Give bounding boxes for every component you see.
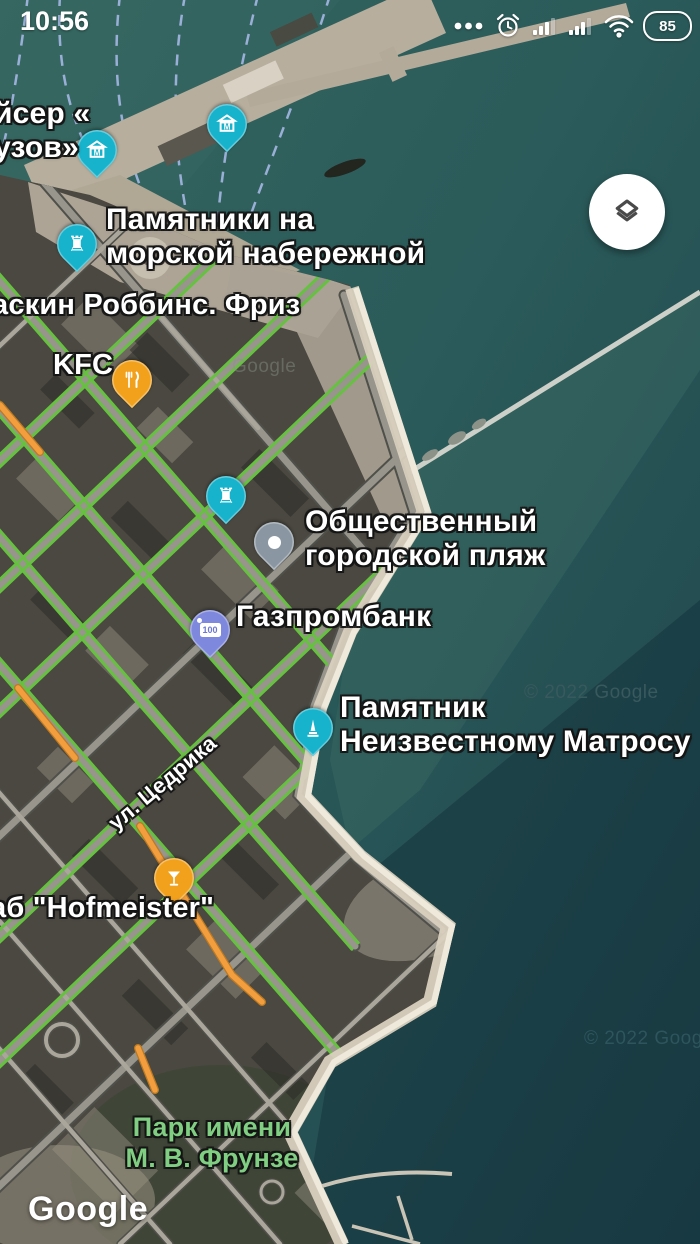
pin-gazprombank[interactable]: 100 xyxy=(182,602,239,659)
pin-museum-pier[interactable]: M xyxy=(199,96,256,153)
label-park-frunze[interactable]: Парк имени М. В. Фрунзе xyxy=(112,1112,312,1174)
label-sailor-monument[interactable]: Памятник Неизвестному Матросу xyxy=(340,691,691,759)
layers-button[interactable] xyxy=(589,174,665,250)
rook-icon: ♜ xyxy=(57,224,97,264)
restaurant-icon xyxy=(112,360,152,400)
battery-icon: 85 xyxy=(643,11,692,41)
signal-sim2-icon xyxy=(567,11,595,41)
wifi-icon xyxy=(603,11,635,41)
label-monuments-embankment[interactable]: Памятники на морской набережной xyxy=(106,203,425,271)
pin-public-beach[interactable] xyxy=(246,514,303,571)
copyright-watermark-bottom: © 2022 Google xyxy=(584,1028,700,1050)
pin-rook-city[interactable]: ♜ xyxy=(198,468,255,525)
svg-text:M: M xyxy=(94,148,101,157)
status-bar: 10:56 xyxy=(0,0,700,50)
label-baskin-robbins[interactable]: аскин Роббинс. Фриз xyxy=(0,289,300,322)
museum-icon: M xyxy=(207,104,247,144)
dot-icon xyxy=(254,522,294,562)
google-watermark-pier: Google xyxy=(232,356,296,378)
pin-monuments-embankment[interactable]: ♜ xyxy=(49,216,106,273)
obelisk-icon xyxy=(293,708,333,748)
label-gazprombank[interactable]: Газпромбанк xyxy=(236,600,431,634)
signal-sim1-icon xyxy=(531,11,559,41)
bank-icon: 100 xyxy=(190,610,230,650)
more-notifications-icon xyxy=(453,11,485,41)
label-pub-hofmeister[interactable]: аб "Hofmeister" xyxy=(0,892,214,925)
label-kfc[interactable]: KFC xyxy=(53,349,113,382)
svg-text:M: M xyxy=(224,122,231,131)
pin-sailor-monument[interactable] xyxy=(285,700,342,757)
phone-screen: Google © 2022 Google © 2022 Google Googl… xyxy=(0,0,700,1244)
label-cruiser[interactable]: йсер « узов» xyxy=(0,97,90,165)
alarm-icon xyxy=(493,11,523,41)
rook-icon: ♜ xyxy=(206,476,246,516)
label-public-beach[interactable]: Общественный городской пляж xyxy=(305,505,546,573)
battery-percent: 85 xyxy=(659,18,676,35)
google-logo: Google xyxy=(28,1190,148,1229)
layers-icon xyxy=(610,195,644,229)
status-clock: 10:56 xyxy=(20,6,89,37)
